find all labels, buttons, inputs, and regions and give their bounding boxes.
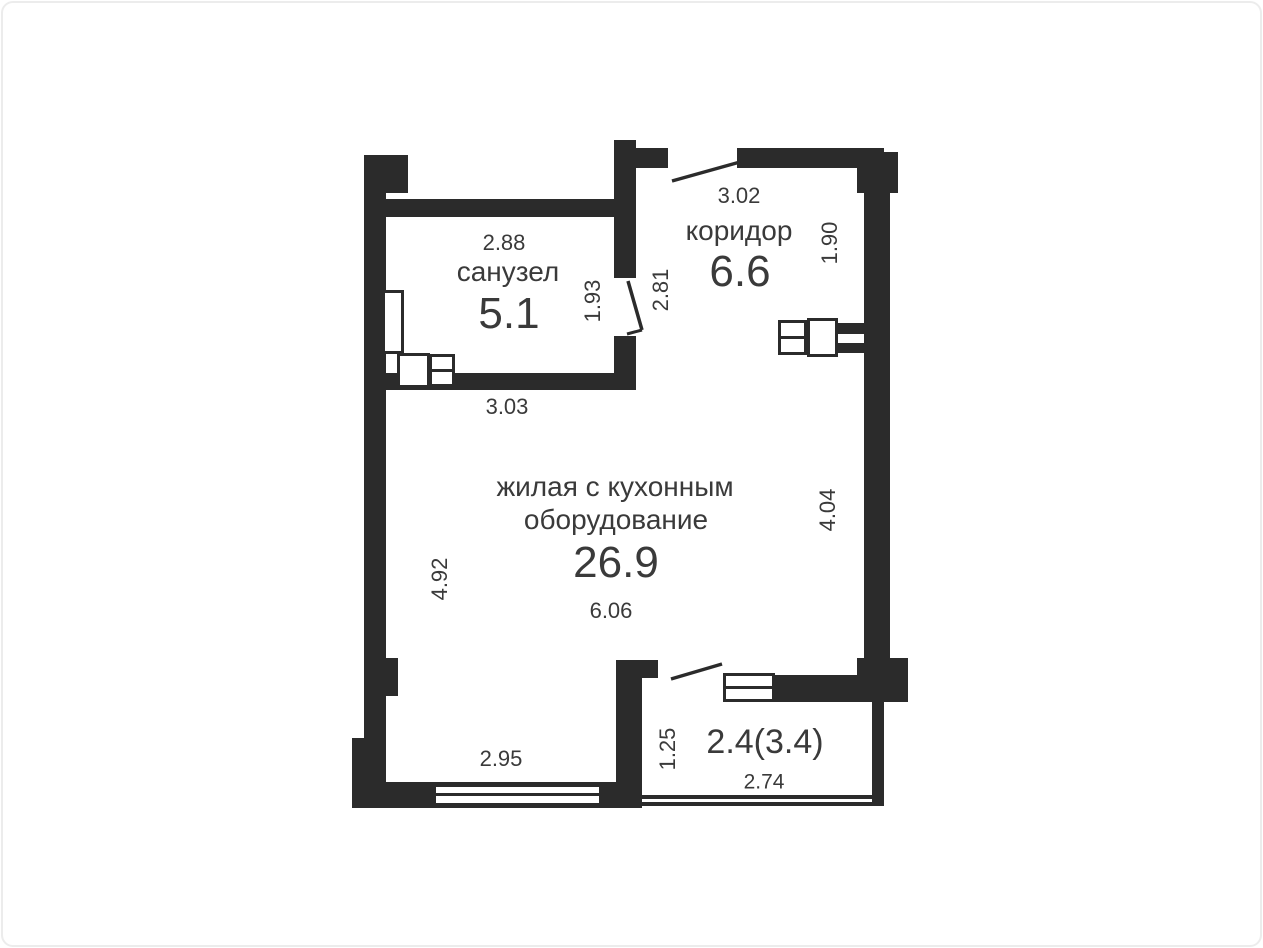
label-living-bottom-width: 6.06 <box>590 600 633 622</box>
label-bathroom-height: 1.93 <box>582 280 604 323</box>
label-corridor-area: 6.6 <box>709 250 770 294</box>
door-leaf-entrance <box>672 162 740 181</box>
label-living-left-height: 4.92 <box>429 558 451 601</box>
label-bathroom-bottom-width: 3.03 <box>486 396 529 418</box>
label-living-name-line2: оборудование <box>524 506 708 534</box>
label-bathroom-area: 5.1 <box>478 292 539 336</box>
door-leaf-balcony <box>671 664 722 679</box>
label-bathroom-door-width: 2.81 <box>650 269 672 312</box>
door-leaf-bathroom <box>628 281 642 330</box>
label-living-right-height: 4.04 <box>817 489 839 532</box>
floor-plan: 2.88 санузел 5.1 1.93 2.81 3.03 3.02 кор… <box>0 0 1263 948</box>
door-leaf-bathroom-tick <box>627 330 642 334</box>
label-balcony-height: 1.25 <box>657 728 679 771</box>
label-balcony-area: 2.4(3.4) <box>706 725 823 759</box>
label-living-name-line1: жилая с кухонным <box>496 473 733 501</box>
label-corridor-width: 3.02 <box>718 185 761 207</box>
label-corridor-height: 1.90 <box>819 222 841 265</box>
label-balcony-width: 2.74 <box>744 772 785 793</box>
label-living-area: 26.9 <box>573 541 659 585</box>
label-bottom-wall-width: 2.95 <box>480 748 523 770</box>
label-bathroom-name: санузел <box>457 258 560 286</box>
label-corridor-name: коридор <box>686 217 793 245</box>
label-bathroom-width: 2.88 <box>483 232 526 254</box>
